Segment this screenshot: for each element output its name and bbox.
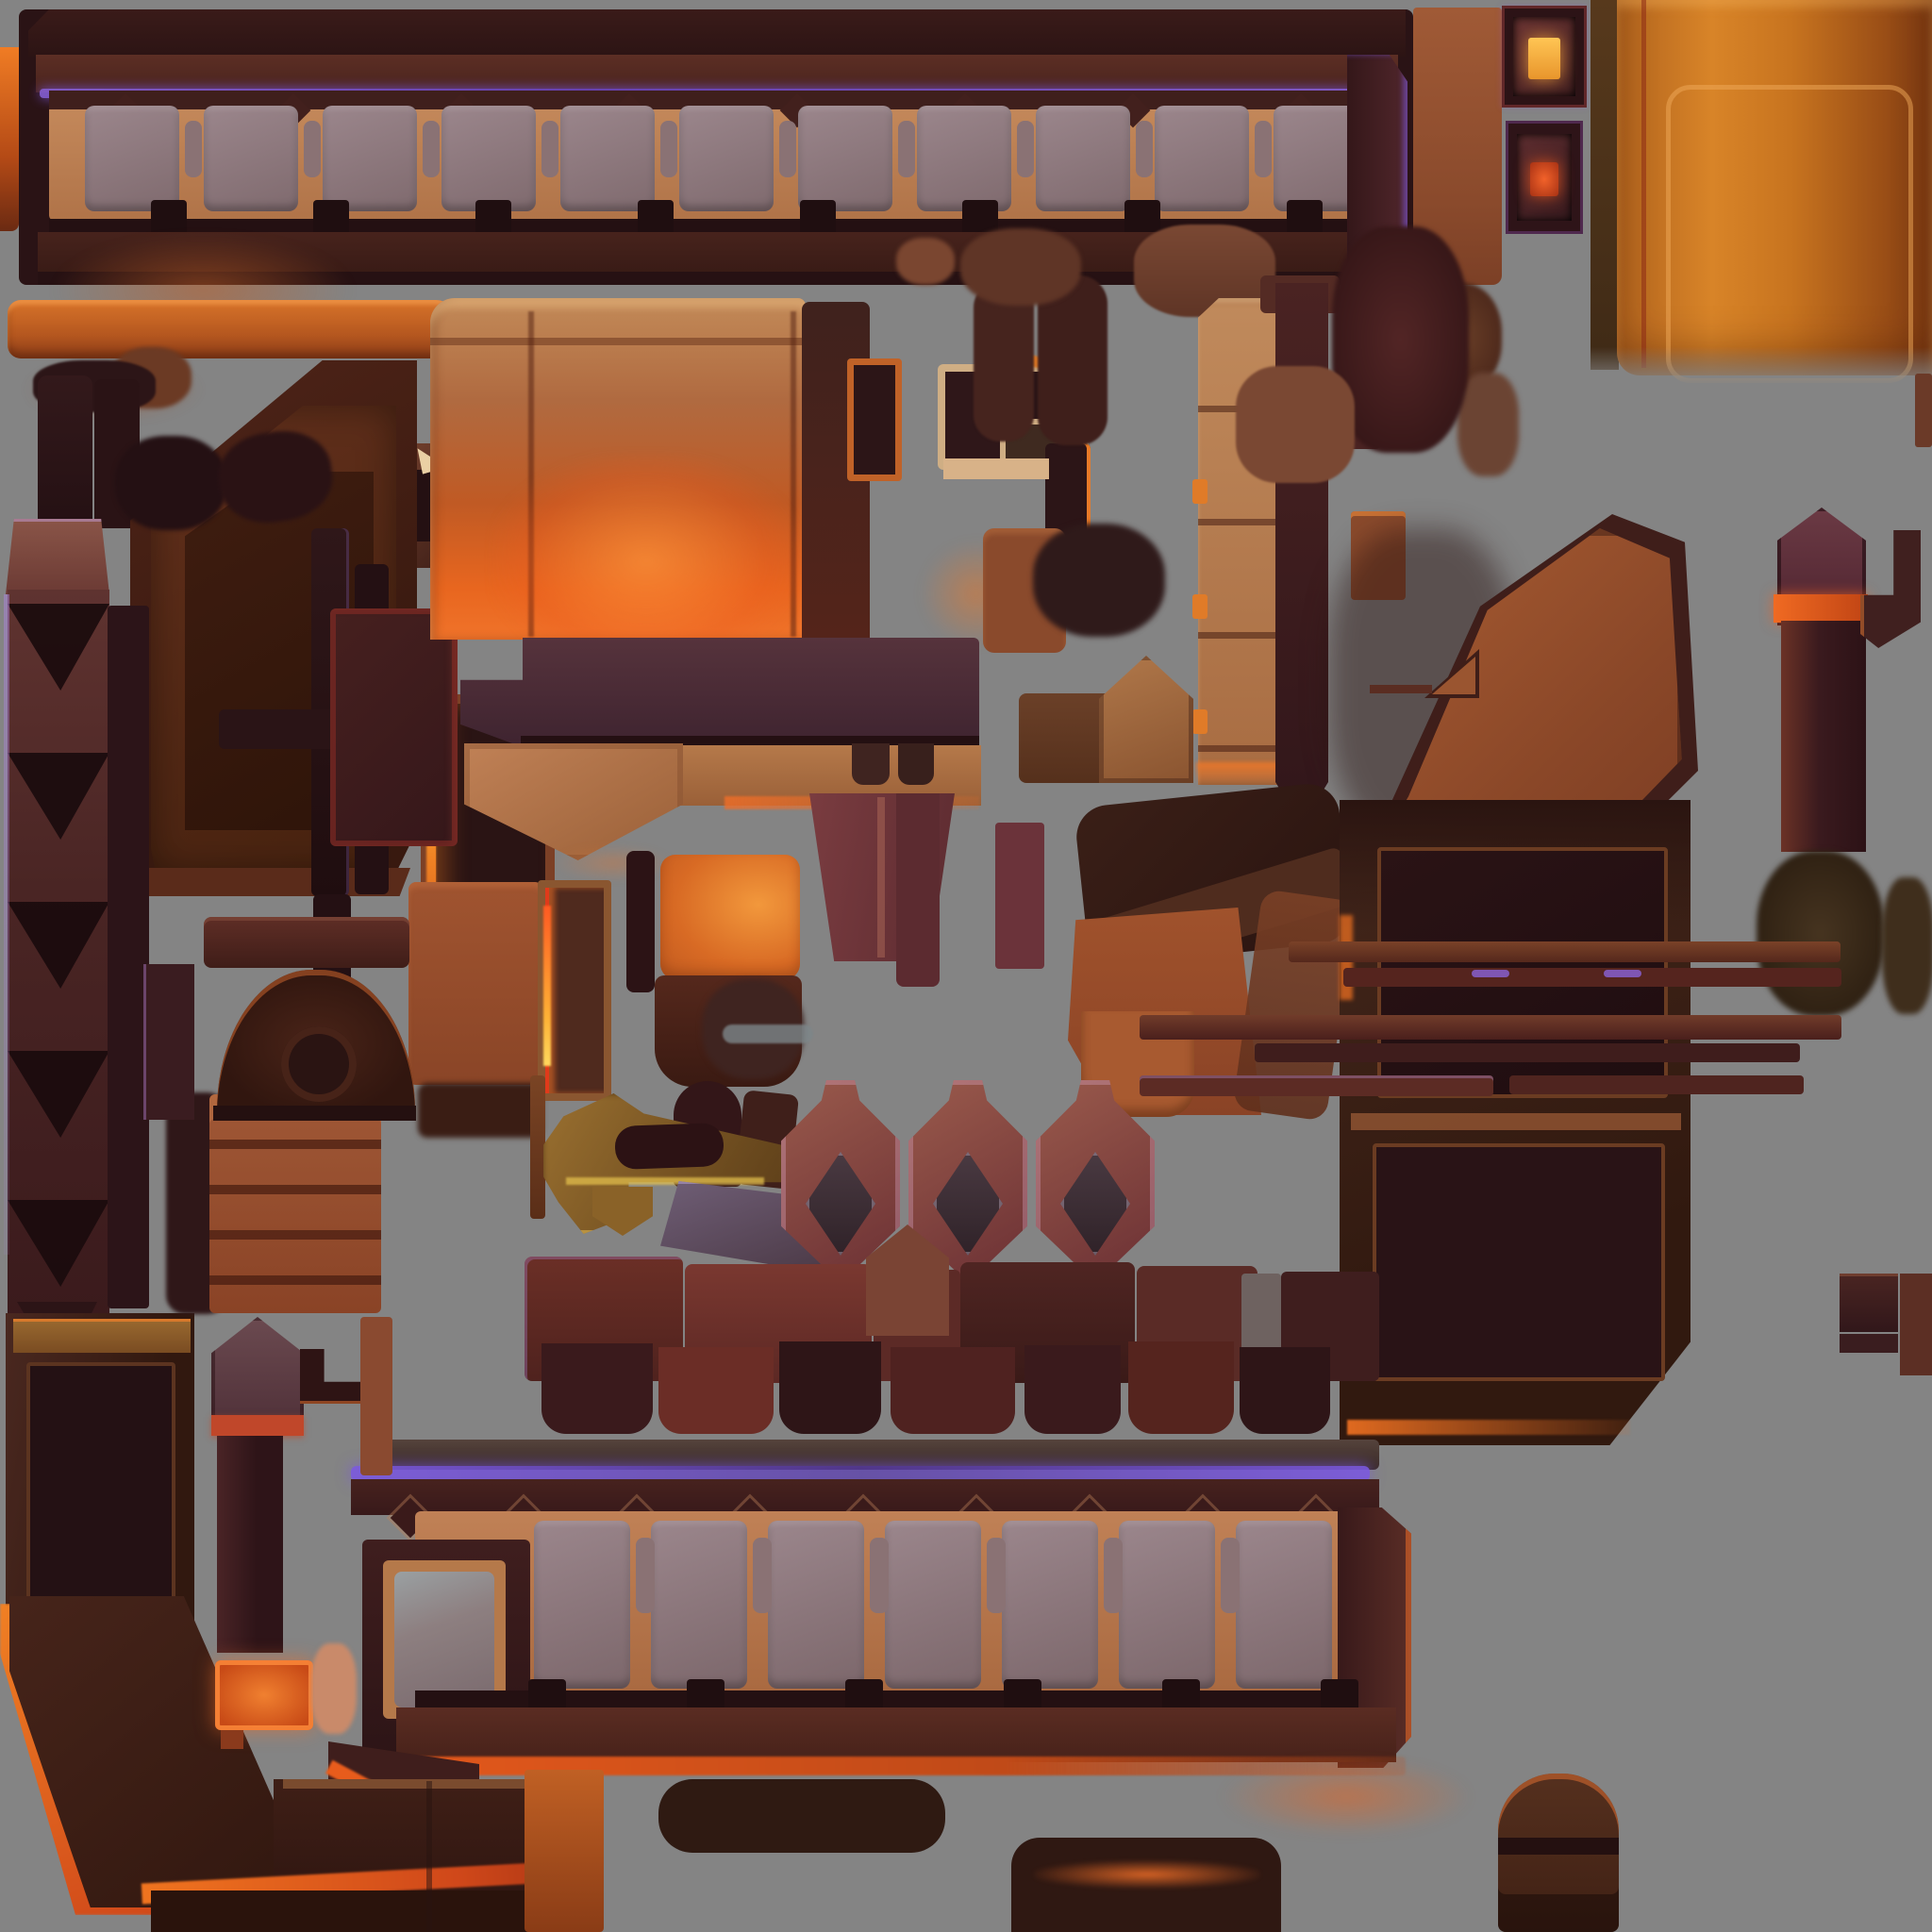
keystone-seam <box>877 797 885 958</box>
lantern-bracket <box>300 1349 360 1404</box>
striped-crate-seam <box>209 1185 381 1194</box>
rust-rect <box>408 882 542 1085</box>
top-beam-interstone <box>185 121 202 177</box>
pole-3 <box>1140 1015 1841 1040</box>
striped-crate-seam <box>209 1140 381 1149</box>
lantern-fin <box>221 1730 243 1749</box>
orange-pillar-bottom-fade <box>1591 347 1932 396</box>
bottom-orange-rect <box>525 1770 604 1932</box>
roof-wedge-small-blob <box>1033 524 1165 637</box>
right-plaque-window-bottom <box>1373 1143 1665 1381</box>
hopper-tip-glow <box>552 844 675 882</box>
top-beam-interstone <box>779 121 796 177</box>
lantern-tower-column <box>217 1436 283 1653</box>
top-beam-stone <box>679 106 774 211</box>
pole-4 <box>1255 1043 1800 1062</box>
top-beam-interstone <box>541 121 558 177</box>
orange-lamp-barrel <box>660 855 800 979</box>
top-beam-stone <box>560 106 655 211</box>
orange-plank <box>8 300 457 358</box>
forge-glow <box>491 453 802 670</box>
top-beam-interstone <box>1136 121 1153 177</box>
wheel-base <box>213 1106 416 1121</box>
rust-sliver <box>360 1317 392 1475</box>
bottom-beam-interstone <box>1104 1538 1123 1613</box>
right-edge-sliver <box>1915 374 1932 447</box>
orange-pillar-seam <box>1641 0 1646 368</box>
stone-pillar-chip <box>1192 594 1207 619</box>
orange-pillar-panel-outline <box>1666 85 1913 383</box>
right-small-square <box>1840 1274 1898 1332</box>
top-beam-cap <box>28 9 1406 57</box>
bottom-beam-stone <box>534 1521 630 1689</box>
pole-5 <box>1140 1075 1493 1096</box>
striped-crate-seam <box>209 1275 381 1285</box>
keystone-column <box>896 793 940 987</box>
bottom-beam-stone <box>1119 1521 1215 1689</box>
left-column-top-face <box>6 519 109 594</box>
top-beam-stone <box>798 106 892 211</box>
flag-foot-bar <box>943 458 1049 479</box>
gold-bar-hot-line <box>543 906 551 1066</box>
capsule-2 <box>658 1347 774 1434</box>
top-beam-stone <box>1155 106 1249 211</box>
top-beam-stone <box>204 106 298 211</box>
texture-atlas <box>0 0 1932 1932</box>
striped-crate-seam <box>209 1230 381 1240</box>
top-beam-interstone <box>660 121 677 177</box>
roof-wedge-small <box>1099 656 1193 783</box>
bottom-thin-line <box>426 1781 432 1932</box>
wheel-side-strip <box>143 964 194 1120</box>
top-beam-interstone <box>1017 121 1034 177</box>
cornice-knob-2 <box>898 743 934 785</box>
left-column-purple-edge <box>4 594 9 1255</box>
bottom-beam-stone <box>651 1521 747 1689</box>
bottom-beam-interstone <box>753 1538 772 1613</box>
bottom-beam-interstone <box>987 1538 1006 1613</box>
lframe-window <box>26 1362 175 1607</box>
knuckle-blob-1 <box>115 436 226 530</box>
wheel-plank <box>204 917 409 968</box>
lframe-gold-band <box>13 1319 191 1353</box>
forge-chimney-cap-line <box>430 338 806 345</box>
top-beam-interstone <box>1255 121 1272 177</box>
olive-blob <box>1757 851 1884 1016</box>
bottom-glow-arc <box>1034 1860 1260 1889</box>
gold-bracket-foot <box>592 1187 653 1236</box>
floating-gray-streak <box>723 1024 813 1043</box>
blob-under-clay-bar-2 <box>1457 373 1519 476</box>
rust-rect-shadow <box>418 1083 542 1138</box>
lump-2 <box>960 228 1081 306</box>
bottom-right-barrel-band <box>1498 1838 1619 1855</box>
bottom-beam-interstone <box>1221 1538 1240 1613</box>
lamp-shadow-bar <box>626 851 655 992</box>
right-plaque-frame-band <box>1351 1113 1681 1130</box>
gem-button-2-core <box>1530 162 1558 196</box>
pole-2 <box>1343 968 1841 987</box>
top-beam-stone <box>1036 106 1130 211</box>
left-column-inner-bar <box>108 606 149 1308</box>
lantern-glow-cube <box>215 1660 313 1730</box>
pole-2-purple-glint <box>1604 970 1641 977</box>
capsule-6 <box>1128 1341 1234 1434</box>
bottom-beam-interstone <box>870 1538 889 1613</box>
pillar-side-strip <box>1591 0 1619 370</box>
pole-1 <box>1289 941 1840 962</box>
capsule-5 <box>1024 1345 1121 1434</box>
capsule-3 <box>779 1341 881 1434</box>
capsule-4 <box>891 1347 1015 1434</box>
cornice-band <box>460 638 979 743</box>
gold-bracket-rim <box>566 1177 764 1185</box>
lantern-tower-cap <box>211 1317 304 1430</box>
stone-pillar-chip <box>1192 709 1207 734</box>
top-beam-stone <box>917 106 1011 211</box>
right-blob-b <box>1236 366 1355 483</box>
bottom-beam-stone <box>768 1521 864 1689</box>
lantern-tower-trim <box>211 1415 304 1436</box>
olive-blob-right <box>1882 877 1932 1014</box>
top-beam-interstone <box>898 121 915 177</box>
bottom-capsule <box>658 1779 945 1853</box>
triangle-chip-line <box>1370 685 1432 693</box>
capsule-7 <box>1240 1347 1330 1434</box>
top-beam-stone <box>323 106 417 211</box>
gold-stick <box>530 1075 545 1219</box>
obelisk-arm <box>1860 530 1921 648</box>
bottom-beam-stone <box>1236 1521 1332 1689</box>
wheel-hub <box>281 1026 357 1102</box>
top-beam-interstone <box>423 121 440 177</box>
gem-button-1-core <box>1528 38 1560 79</box>
bottom-beam-lower-band <box>396 1707 1396 1762</box>
capsule-1 <box>541 1343 653 1434</box>
right-plaque-rim-bottom <box>1347 1420 1630 1435</box>
right-small-bracket <box>1900 1274 1932 1375</box>
cornice-knob-1 <box>852 743 890 785</box>
door-panel <box>330 608 458 846</box>
lump-1 <box>896 238 955 285</box>
bottom-beam-interstone <box>636 1538 655 1613</box>
lantern-side-blob <box>311 1643 357 1734</box>
orange-framed-window <box>847 358 902 481</box>
post-a <box>38 375 92 531</box>
top-beam-upper-band <box>36 55 1398 92</box>
left-edge-orange-strip <box>0 47 19 231</box>
top-beam-interstone <box>304 121 321 177</box>
right-small-bar <box>1840 1334 1898 1353</box>
obelisk-column <box>1781 621 1866 852</box>
stone-pillar-chip <box>1192 479 1207 504</box>
under-beam-glow <box>1219 1757 1474 1837</box>
t-column <box>1275 283 1328 825</box>
pole-6 <box>1509 1075 1804 1094</box>
bottom-beam-stone <box>885 1521 981 1689</box>
top-beam-stone <box>85 106 179 211</box>
gold-bracket-notch <box>614 1123 724 1170</box>
top-beam-stone <box>441 106 536 211</box>
bottom-beam-stone <box>1002 1521 1098 1689</box>
bottom-beam-left-cap-stone <box>394 1572 494 1707</box>
obelisk-glow-band <box>1774 594 1868 623</box>
pole-2-purple-glint <box>1472 970 1509 977</box>
keystone-trapezoid-2 <box>995 823 1044 969</box>
